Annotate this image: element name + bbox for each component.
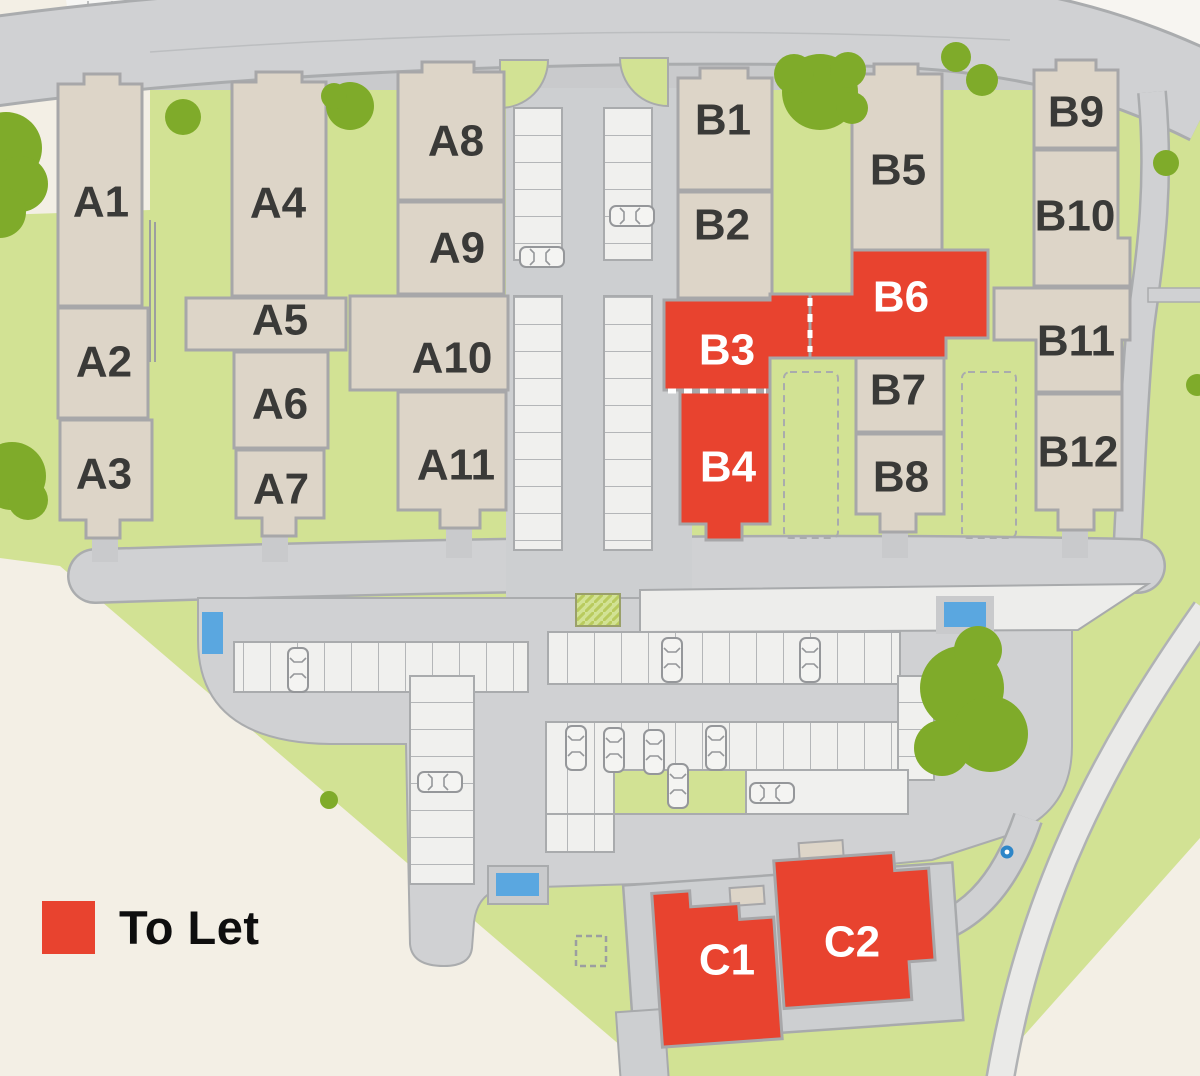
unit-a1[interactable] [58,74,142,306]
unit-b2[interactable] [678,192,772,298]
unit-a9[interactable] [398,202,504,294]
unit-a10[interactable] [350,296,508,390]
unit-a3[interactable] [60,420,152,538]
unit-a4[interactable] [232,72,326,296]
road-right-stub [1148,288,1200,302]
unit-a6[interactable] [234,352,328,448]
legend-to-let-swatch [42,901,95,954]
unit-a11[interactable] [398,392,506,528]
buildings-a [58,62,508,538]
unit-b12[interactable] [1036,394,1122,530]
unit-b4[interactable] [680,392,770,540]
legend-to-let-label: To Let [119,900,260,955]
unit-a5[interactable] [186,298,346,350]
unit-b1[interactable] [678,68,772,190]
buildings-b [664,60,1130,540]
legend: To Let [42,900,260,955]
unit-a2[interactable] [58,308,148,418]
site-plan-page: A1 A2 A3 A4 A5 A6 A7 A8 A9 A10 A11 B1 B2… [0,0,1200,1076]
paved-pad [640,584,1148,632]
unit-a8[interactable] [398,62,504,200]
hatched-area [576,594,620,626]
unit-b5[interactable] [852,64,942,250]
unit-b10[interactable] [1034,150,1130,286]
unit-b9[interactable] [1034,60,1118,148]
